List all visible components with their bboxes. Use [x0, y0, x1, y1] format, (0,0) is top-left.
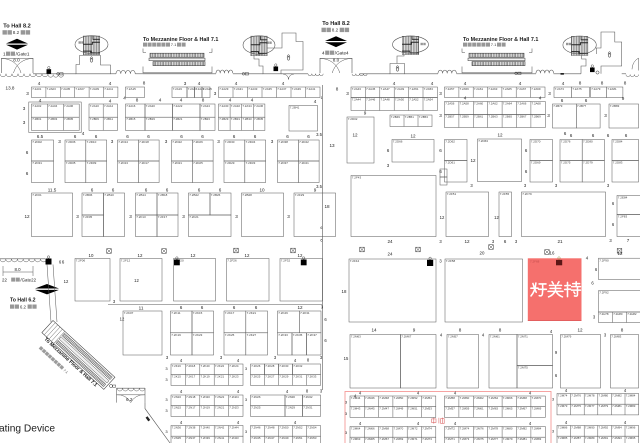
svg-text:7.2A49: 7.2A49	[395, 87, 405, 91]
svg-text:7.2B03: 7.2B03	[48, 117, 58, 121]
svg-text:6: 6	[112, 188, 115, 193]
svg-text:7.2B65: 7.2B65	[503, 115, 513, 119]
svg-text:7.2M62: 7.2M62	[474, 396, 484, 400]
svg-text:7.2A24: 7.2A24	[201, 104, 211, 108]
svg-text:7.2N19: 7.2N19	[201, 406, 211, 410]
svg-text:7.2A52: 7.2A52	[409, 98, 419, 102]
svg-text:6: 6	[525, 148, 528, 153]
svg-text:7.2N52: 7.2N52	[293, 426, 303, 430]
svg-text:7.2D70: 7.2D70	[531, 140, 541, 144]
svg-text:7.2D38: 7.2D38	[278, 140, 288, 144]
svg-text:7.2M63: 7.2M63	[351, 335, 361, 339]
svg-text:7.2N21: 7.2N21	[215, 406, 225, 410]
svg-text:7.2K28: 7.2K28	[265, 364, 275, 368]
svg-text:7.2K35: 7.2K35	[293, 333, 303, 337]
svg-text:9: 9	[622, 96, 625, 101]
svg-text:7.2M52: 7.2M52	[408, 396, 418, 400]
svg-text:8: 8	[336, 87, 339, 92]
svg-text:7.2N50: 7.2N50	[279, 426, 289, 430]
svg-text:7.2F90: 7.2F90	[599, 258, 609, 262]
svg-text:7.2M79: 7.2M79	[561, 335, 571, 339]
svg-text:4: 4	[198, 81, 201, 86]
svg-text:/Gate1: /Gate1	[16, 52, 30, 57]
svg-text:7.2F13: 7.2F13	[136, 215, 146, 219]
svg-text:7.2B18: 7.2B18	[158, 193, 168, 197]
svg-text:7.2A15: 7.2A15	[126, 87, 136, 91]
svg-text:8.0: 8.0	[14, 267, 21, 272]
svg-text:6: 6	[439, 169, 442, 174]
svg-text:7.2A61: 7.2A61	[474, 87, 484, 91]
svg-text:7.2D31: 7.2D31	[32, 161, 42, 165]
svg-text:7.2F55: 7.2F55	[500, 192, 510, 196]
svg-text:7.2K37: 7.2K37	[307, 333, 317, 337]
svg-text:7.2A41: 7.2A41	[306, 87, 316, 91]
svg-text:4: 4	[282, 81, 285, 86]
svg-text:7.2M75: 7.2M75	[474, 437, 484, 441]
svg-text:12: 12	[440, 215, 445, 220]
svg-text:6: 6	[592, 133, 595, 138]
svg-text:7.2M78: 7.2M78	[488, 427, 498, 431]
svg-text:7.2A73: 7.2A73	[555, 87, 565, 91]
svg-text:7.2D42: 7.2D42	[299, 140, 309, 144]
svg-text:7.2A79: 7.2A79	[591, 87, 601, 91]
svg-text:7.2N43: 7.2N43	[229, 436, 239, 440]
svg-text:7.2B53: 7.2B53	[419, 115, 429, 119]
svg-text:6: 6	[62, 260, 65, 265]
svg-text:12: 12	[297, 305, 303, 310]
svg-text:7.2N15: 7.2N15	[172, 406, 182, 410]
svg-text:7.2M69: 7.2M69	[532, 407, 542, 411]
svg-text:6: 6	[126, 134, 129, 139]
svg-text:7.2N24: 7.2N24	[229, 395, 239, 399]
svg-text:7.2K25: 7.2K25	[225, 333, 235, 337]
svg-text:6: 6	[233, 305, 236, 310]
svg-text:7.2N51: 7.2N51	[293, 436, 303, 440]
svg-text:7.2K30: 7.2K30	[279, 364, 289, 368]
svg-text:7.2A20: 7.2A20	[146, 104, 156, 108]
svg-text:7.2N49: 7.2N49	[279, 436, 289, 440]
svg-text:6: 6	[387, 148, 390, 153]
svg-text:9: 9	[364, 111, 367, 116]
svg-text:7.2B26: 7.2B26	[211, 193, 221, 197]
svg-text:7.2N37: 7.2N37	[186, 436, 196, 440]
svg-text:7.2A34: 7.2A34	[242, 104, 252, 108]
svg-text:7.2B31: 7.2B31	[231, 117, 241, 121]
svg-text:7.2M72: 7.2M72	[445, 427, 455, 431]
svg-text:7.2D13: 7.2D13	[118, 161, 128, 165]
svg-text:7.2F06: 7.2F06	[76, 259, 86, 263]
svg-text:7.2D14: 7.2D14	[118, 140, 128, 144]
svg-text:7.2M84: 7.2M84	[532, 427, 542, 431]
svg-text:7.2B11: 7.2B11	[104, 117, 113, 121]
svg-text:7.2K23: 7.2K23	[193, 333, 203, 337]
svg-text:To Hall 6.2: To Hall 6.2	[10, 298, 36, 304]
svg-text:7.2F17: 7.2F17	[158, 215, 168, 219]
svg-text:7.2D80: 7.2D80	[583, 140, 593, 144]
svg-text:7.2M61: 7.2M61	[474, 407, 484, 411]
svg-text:7.2H80: 7.2H80	[613, 312, 623, 316]
svg-text:8: 8	[136, 98, 139, 103]
svg-text:7.2M67: 7.2M67	[517, 407, 527, 411]
svg-text:7.2A37: 7.2A37	[277, 87, 287, 91]
svg-text:7.2M92: 7.2M92	[599, 426, 609, 430]
svg-text:7.2M91: 7.2M91	[599, 436, 609, 440]
svg-text:6: 6	[525, 169, 528, 174]
svg-text:6.5: 6.5	[37, 134, 44, 139]
svg-text:7.2D79: 7.2D79	[583, 161, 593, 165]
svg-text:7.2B49: 7.2B49	[391, 115, 401, 119]
svg-text:8: 8	[601, 81, 604, 86]
svg-text:7: 7	[627, 238, 630, 243]
svg-text:7.2D76: 7.2D76	[561, 140, 571, 144]
svg-text:3: 3	[111, 139, 114, 144]
svg-text:7.2A43: 7.2A43	[352, 87, 362, 91]
svg-text:6: 6	[570, 133, 573, 138]
svg-text:8.2: 8.2	[332, 28, 339, 33]
svg-text:7.2K17: 7.2K17	[186, 375, 196, 379]
svg-text:7.2M64: 7.2M64	[351, 427, 361, 431]
svg-text:7.2D18: 7.2D18	[139, 140, 149, 144]
svg-text:7.2M48: 7.2M48	[379, 396, 389, 400]
svg-text:7.2F05: 7.2F05	[83, 215, 93, 219]
svg-text:4: 4	[123, 96, 126, 101]
svg-text:7.2B14: 7.2B14	[136, 193, 146, 197]
svg-text:7.2D21: 7.2D21	[172, 161, 182, 165]
svg-text:1: 1	[3, 52, 6, 57]
svg-text:7.2F51: 7.2F51	[447, 192, 457, 196]
svg-text:20: 20	[480, 251, 485, 256]
svg-text:7.2M58: 7.2M58	[445, 396, 455, 400]
svg-text:4: 4	[159, 98, 162, 103]
svg-text:6.2: 6.2	[20, 304, 27, 309]
svg-text:7.2M43: 7.2M43	[351, 407, 361, 411]
svg-text:7.2M88: 7.2M88	[571, 426, 581, 430]
svg-text:7.2M74: 7.2M74	[558, 394, 568, 398]
svg-text:7.2A01: 7.2A01	[32, 87, 42, 91]
svg-text:7.2M63: 7.2M63	[488, 407, 498, 411]
svg-text:12: 12	[138, 253, 143, 258]
svg-text:6: 6	[439, 148, 442, 153]
svg-text:7.2M64: 7.2M64	[488, 396, 498, 400]
svg-text:4: 4	[229, 98, 232, 103]
svg-text:21: 21	[557, 239, 563, 244]
svg-text:7.2M86: 7.2M86	[558, 426, 568, 430]
svg-text:7.2M94: 7.2M94	[612, 426, 622, 430]
svg-text:6: 6	[607, 133, 610, 138]
svg-text:6: 6	[504, 239, 507, 244]
svg-text:7.2M82: 7.2M82	[517, 427, 527, 431]
svg-text:7.2K21: 7.2K21	[215, 375, 225, 379]
svg-text:7.2N36: 7.2N36	[172, 426, 182, 430]
svg-text:7.2A47: 7.2A47	[381, 87, 391, 91]
svg-text:7.2M84: 7.2M84	[626, 394, 636, 398]
svg-text:7.2B35: 7.2B35	[254, 117, 264, 121]
svg-text:8: 8	[621, 328, 624, 333]
svg-text:7.2A39: 7.2A39	[292, 87, 302, 91]
svg-text:6: 6	[255, 305, 258, 310]
svg-text:7.2N45: 7.2N45	[251, 436, 261, 440]
svg-text:3: 3	[184, 81, 187, 86]
svg-text:7.2B63: 7.2B63	[488, 115, 498, 119]
svg-text:15: 15	[344, 356, 349, 361]
svg-text:10: 10	[89, 253, 94, 258]
svg-text:3: 3	[129, 214, 132, 219]
svg-text:7.2K19: 7.2K19	[201, 375, 211, 379]
svg-text:7.2A05: 7.2A05	[61, 87, 71, 91]
svg-text:7.2F29: 7.2F29	[295, 193, 305, 197]
svg-text:7.2A12: 7.2A12	[104, 104, 114, 108]
svg-text:3: 3	[26, 91, 29, 96]
svg-text:7.2K33: 7.2K33	[307, 375, 317, 379]
svg-text:7.2D26: 7.2D26	[193, 140, 203, 144]
svg-text:12: 12	[494, 215, 499, 220]
svg-text:7.2D02: 7.2D02	[348, 117, 358, 121]
svg-text:7.2M54: 7.2M54	[422, 396, 432, 400]
svg-text:10: 10	[259, 188, 265, 193]
svg-text:7.2M78: 7.2M78	[585, 394, 595, 398]
svg-text:7.2A35: 7.2A35	[263, 87, 273, 91]
svg-text:7.2M79: 7.2M79	[503, 437, 513, 441]
svg-text:7.2A32: 7.2A32	[231, 104, 241, 108]
svg-text:9: 9	[413, 328, 416, 333]
svg-text:3: 3	[604, 113, 607, 118]
svg-text:7.2N23: 7.2N23	[229, 406, 239, 410]
svg-text:7.2B19: 7.2B19	[146, 117, 156, 121]
svg-text:4: 4	[393, 81, 396, 86]
svg-text:6: 6	[286, 134, 289, 139]
svg-text:7.2A36: 7.2A36	[254, 104, 264, 108]
svg-text:7.1: 7.1	[171, 42, 177, 47]
svg-text:12: 12	[245, 253, 250, 258]
svg-text:7.2M59: 7.2M59	[460, 407, 470, 411]
svg-text:3: 3	[439, 91, 442, 96]
svg-text:7.2N38: 7.2N38	[186, 426, 196, 430]
svg-text:7.2K31: 7.2K31	[300, 311, 310, 315]
svg-text:7.2A57: 7.2A57	[445, 87, 455, 91]
svg-text:7.2A16: 7.2A16	[126, 104, 136, 108]
svg-text:7.2K18: 7.2K18	[186, 364, 196, 368]
svg-text:7.2B05: 7.2B05	[64, 117, 74, 121]
svg-text:7.2B33: 7.2B33	[242, 117, 252, 121]
svg-text:7.2M75: 7.2M75	[518, 366, 528, 370]
svg-text:7.2D09: 7.2D09	[87, 161, 97, 165]
svg-text:7.2M77: 7.2M77	[585, 404, 595, 408]
svg-text:7.2A44: 7.2A44	[352, 98, 362, 102]
svg-text:7.2M45: 7.2M45	[365, 407, 375, 411]
svg-text:3: 3	[217, 139, 220, 144]
svg-text:7.2A30: 7.2A30	[219, 104, 229, 108]
svg-text:6: 6	[201, 305, 204, 310]
svg-text:7.2A53: 7.2A53	[424, 87, 434, 91]
svg-text:7.2D75: 7.2D75	[561, 161, 571, 165]
svg-text:7.2A69: 7.2A69	[531, 87, 541, 91]
svg-text:7.2F44: 7.2F44	[350, 259, 360, 263]
svg-text:7.2B09: 7.2B09	[90, 117, 100, 121]
svg-text:7.2A65: 7.2A65	[503, 87, 513, 91]
svg-text:3: 3	[548, 91, 551, 96]
svg-text:7.2D17: 7.2D17	[139, 161, 149, 165]
svg-text:7.2M61: 7.2M61	[490, 335, 500, 339]
svg-text:12: 12	[410, 134, 416, 139]
svg-text:12: 12	[120, 317, 125, 322]
svg-text:12: 12	[470, 158, 476, 163]
svg-text:7.2A04: 7.2A04	[48, 104, 58, 108]
svg-text:7.2K29: 7.2K29	[279, 375, 289, 379]
svg-text:7.2B23: 7.2B23	[201, 117, 211, 121]
svg-text:7.2N26: 7.2N26	[251, 395, 261, 399]
svg-text:7.2A31: 7.2A31	[234, 87, 244, 91]
svg-text:7.2D63: 7.2D63	[478, 139, 488, 143]
svg-text:7.2M47: 7.2M47	[379, 407, 389, 411]
svg-text:6: 6	[585, 98, 588, 103]
svg-text:4: 4	[109, 99, 112, 104]
svg-text:7.2M71: 7.2M71	[408, 437, 418, 441]
svg-text:3: 3	[23, 106, 26, 111]
svg-text:24: 24	[387, 239, 393, 244]
svg-text:7.2M70: 7.2M70	[532, 396, 542, 400]
svg-text:7.2A67: 7.2A67	[517, 87, 527, 91]
svg-text:6: 6	[180, 305, 183, 310]
svg-text:7.2F43: 7.2F43	[352, 176, 362, 180]
svg-text:7.2K16: 7.2K16	[172, 364, 182, 368]
svg-text:6: 6	[564, 131, 567, 136]
svg-text:7.2M80: 7.2M80	[503, 427, 513, 431]
svg-text:7.2A02: 7.2A02	[32, 104, 42, 108]
svg-text:14: 14	[371, 328, 377, 333]
svg-text:7.2N30: 7.2N30	[286, 395, 296, 399]
svg-text:7.2F01: 7.2F01	[32, 193, 42, 197]
svg-text:7.2A51: 7.2A51	[409, 87, 419, 91]
svg-text:4: 4	[314, 99, 317, 104]
svg-text:7.2F21: 7.2F21	[189, 215, 199, 219]
svg-text:7.2A63: 7.2A63	[488, 87, 498, 91]
svg-text:7.2M83: 7.2M83	[532, 437, 542, 441]
svg-text:13: 13	[329, 143, 335, 148]
svg-text:6: 6	[219, 188, 222, 193]
svg-text:7.2A29: 7.2A29	[219, 87, 229, 91]
svg-text:7.2M73: 7.2M73	[558, 404, 568, 408]
svg-text:7.2D22: 7.2D22	[172, 140, 182, 144]
svg-text:7.2A50: 7.2A50	[395, 98, 405, 102]
svg-text:12: 12	[191, 253, 196, 258]
svg-text:4: 4	[235, 81, 238, 86]
svg-text:6.2: 6.2	[126, 397, 133, 402]
svg-text:16: 16	[550, 251, 555, 256]
svg-text:To Hall 8.2: To Hall 8.2	[322, 21, 350, 27]
svg-text:3.5: 3.5	[316, 184, 322, 189]
svg-text:7.2F58: 7.2F58	[446, 259, 456, 263]
svg-text:7.2A58: 7.2A58	[460, 102, 470, 106]
svg-text:7.2B41: 7.2B41	[290, 106, 300, 110]
svg-text:7.2N25: 7.2N25	[251, 406, 261, 410]
svg-text:7.2M63: 7.2M63	[351, 437, 361, 441]
svg-text:8: 8	[579, 81, 582, 86]
svg-text:7.2M73: 7.2M73	[460, 437, 470, 441]
svg-text:7.2M66: 7.2M66	[503, 396, 513, 400]
svg-text:3: 3	[287, 214, 290, 219]
svg-text:7.2K29: 7.2K29	[278, 311, 288, 315]
svg-text:7.2A03: 7.2A03	[47, 87, 57, 91]
svg-text:6: 6	[91, 188, 94, 193]
svg-text:9: 9	[314, 188, 317, 193]
svg-text:7.2A64: 7.2A64	[503, 102, 513, 106]
svg-text:7.2K26: 7.2K26	[251, 364, 261, 368]
svg-text:11.5: 11.5	[48, 188, 57, 193]
svg-text:7.2N29: 7.2N29	[286, 406, 296, 410]
svg-text:7.2M76: 7.2M76	[474, 427, 484, 431]
svg-text:7.2M65: 7.2M65	[503, 407, 513, 411]
svg-text:7.2F26: 7.2F26	[227, 259, 237, 263]
svg-text:7.2D10: 7.2D10	[87, 140, 97, 144]
svg-text:7.2A33: 7.2A33	[248, 87, 258, 91]
svg-text:7.2N17: 7.2N17	[186, 406, 196, 410]
svg-text:7.2B51: 7.2B51	[405, 115, 415, 119]
svg-text:7.2D30: 7.2D30	[225, 140, 235, 144]
svg-text:3.5: 3.5	[316, 132, 322, 137]
svg-text:6: 6	[180, 134, 183, 139]
svg-text:6: 6	[307, 134, 310, 139]
svg-text:7.2M50: 7.2M50	[394, 396, 404, 400]
svg-text:7.2A75: 7.2A75	[572, 87, 582, 91]
svg-text:7.2F92: 7.2F92	[599, 291, 609, 295]
svg-text:24: 24	[388, 252, 393, 257]
svg-text:8: 8	[202, 98, 205, 103]
svg-text:7.2D29: 7.2D29	[225, 161, 235, 165]
svg-text:4: 4	[39, 98, 42, 103]
svg-text:7.2B28: 7.2B28	[242, 193, 252, 197]
svg-text:18: 18	[342, 289, 347, 294]
svg-text:7.2A81: 7.2A81	[607, 87, 617, 91]
svg-text:4: 4	[82, 131, 85, 136]
svg-text:8: 8	[624, 81, 627, 86]
svg-text:7.2M74: 7.2M74	[422, 427, 432, 431]
svg-text:4: 4	[251, 98, 254, 103]
svg-text:7.2A19: 7.2A19	[173, 87, 183, 91]
svg-text:7.2K31: 7.2K31	[293, 375, 303, 379]
svg-text:7.2N44: 7.2N44	[229, 426, 239, 430]
svg-text:7.2M46: 7.2M46	[365, 396, 375, 400]
svg-text:ating Device: ating Device	[0, 424, 55, 435]
svg-text:7.2K27: 7.2K27	[247, 333, 257, 337]
svg-text:7.2B15: 7.2B15	[126, 117, 136, 121]
svg-text:7.2D37: 7.2D37	[278, 161, 288, 165]
svg-text:7.2B06: 7.2B06	[83, 193, 93, 197]
svg-text:12: 12	[134, 278, 139, 283]
svg-text:6: 6	[166, 188, 169, 193]
svg-text:7.2F32: 7.2F32	[281, 259, 291, 263]
svg-text:7.2K21: 7.2K21	[247, 311, 257, 315]
svg-text:6: 6	[95, 134, 98, 139]
svg-text:7.2A11: 7.2A11	[104, 87, 113, 91]
svg-text:7.2N46: 7.2N46	[251, 426, 261, 430]
svg-text:7.2A46: 7.2A46	[366, 98, 376, 102]
svg-text:8: 8	[459, 328, 462, 333]
svg-text:7.2B69: 7.2B69	[532, 115, 542, 119]
svg-text:7.2M76: 7.2M76	[571, 394, 581, 398]
svg-text:7.2N20: 7.2N20	[201, 395, 211, 399]
svg-text:7.2D66: 7.2D66	[393, 140, 403, 144]
svg-text:7.2M71: 7.2M71	[518, 335, 528, 339]
svg-text:6: 6	[145, 188, 148, 193]
svg-text:7.1: 7.1	[491, 42, 497, 47]
svg-text:7.2A54: 7.2A54	[424, 98, 434, 102]
svg-text:3: 3	[439, 113, 442, 118]
svg-text:7.2A59: 7.2A59	[460, 87, 470, 91]
svg-text:7.2B21: 7.2B21	[173, 117, 183, 121]
svg-text:7.2M85: 7.2M85	[558, 436, 568, 440]
svg-text:6: 6	[625, 133, 628, 138]
svg-text:7.2M57: 7.2M57	[445, 407, 455, 411]
